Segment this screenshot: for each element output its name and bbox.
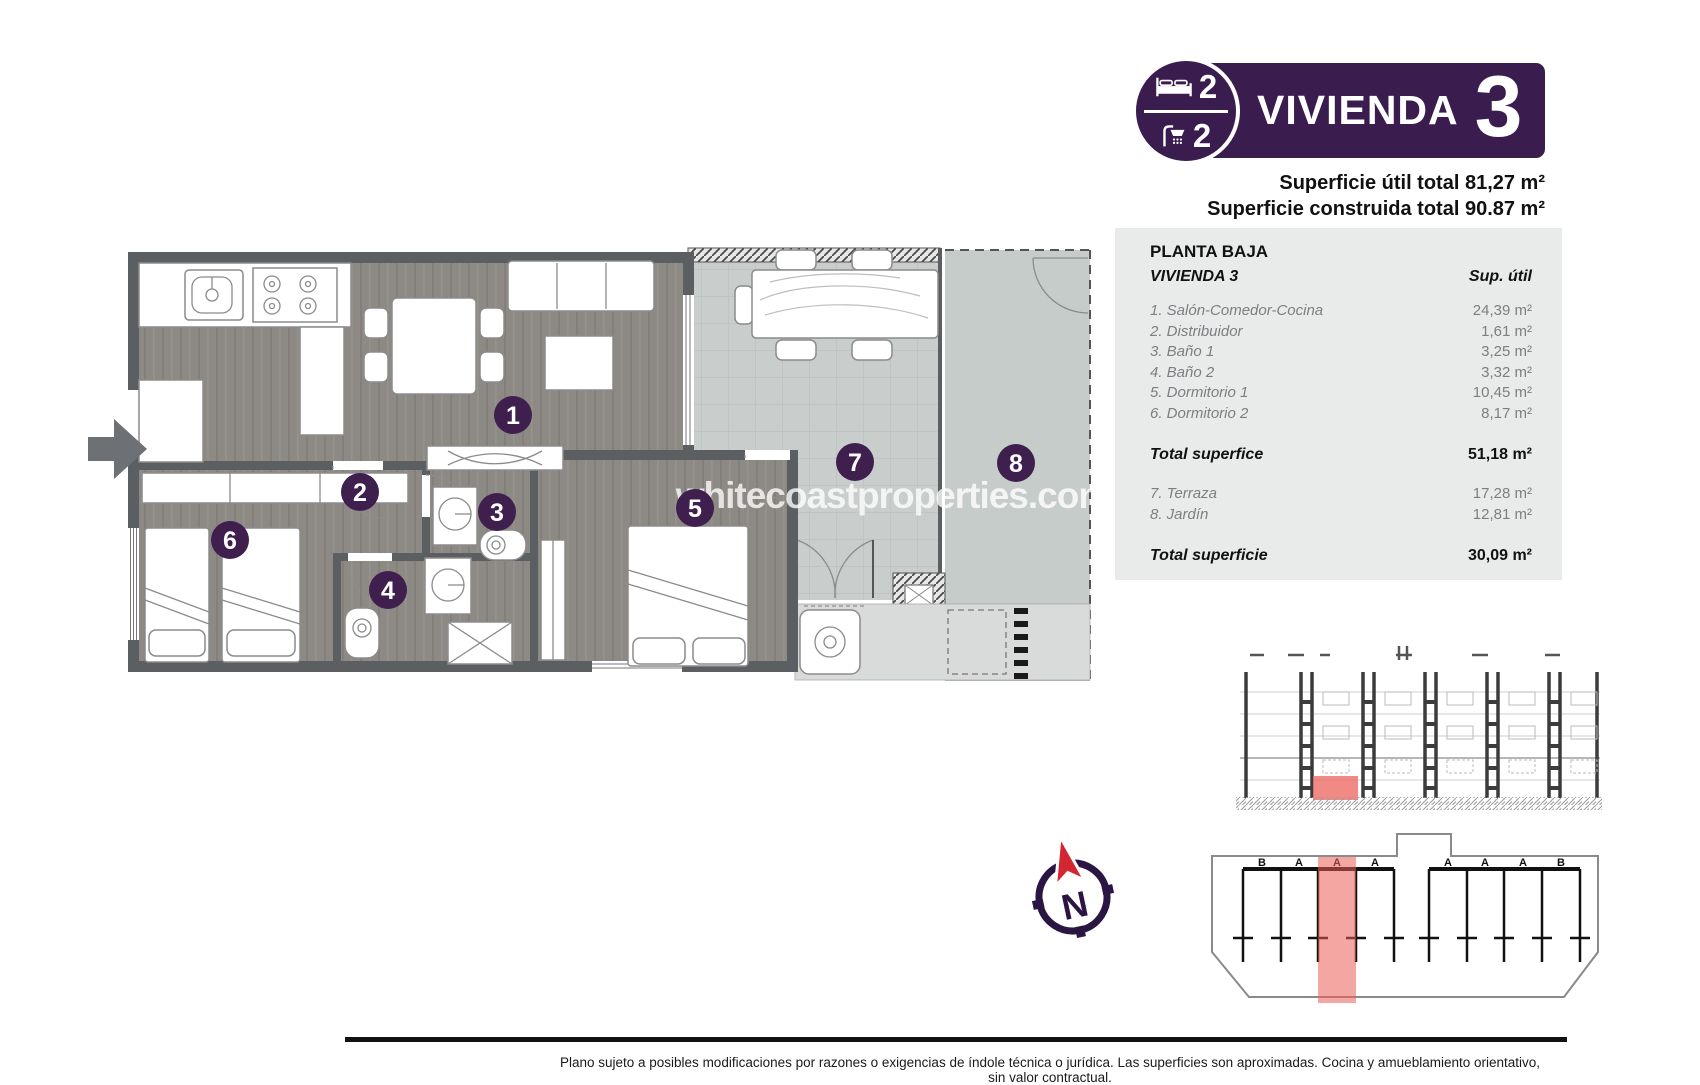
site-plan: B A A A A A A B	[1212, 834, 1598, 1003]
brochure-page: { "badge": { "title": "VIVIENDA", "numbe…	[0, 0, 1700, 1080]
table-title: PLANTA BAJA	[1150, 242, 1532, 262]
room-number-6: 6	[211, 521, 249, 559]
washing-machine	[800, 606, 864, 674]
bathroom-count: 2	[1193, 119, 1211, 152]
toilet	[345, 608, 379, 658]
room-surface-list: 1. Salón-Comedor-Cocina 24,39 m² 2. Dist…	[1150, 301, 1532, 424]
svg-text:3: 3	[490, 499, 504, 527]
table-row: 7. Terraza 17,28 m²	[1150, 484, 1532, 505]
table-row: 1. Salón-Comedor-Cocina 24,39 m²	[1150, 301, 1532, 322]
unit-label: A	[1519, 857, 1527, 869]
table-row: 2. Distribuidor 1,61 m²	[1150, 322, 1532, 343]
unit-label: A	[1295, 857, 1303, 869]
north-arrow-icon	[1045, 833, 1084, 886]
useful-surface-total: Superficie útil total 81,27 m²	[1207, 170, 1545, 196]
utility-patio	[795, 604, 1090, 680]
svg-text:4: 4	[381, 577, 395, 605]
table-subtitle: VIVIENDA 3	[1150, 268, 1238, 286]
table-row: 5. Dormitorio 1 10,45 m²	[1150, 383, 1532, 404]
room-number-2: 2	[341, 473, 379, 511]
north-label: N	[1058, 883, 1092, 929]
badge-unit-number: 3	[1475, 69, 1523, 146]
room-number-7: 7	[836, 443, 874, 481]
kitchen-island	[300, 327, 344, 435]
room-number-5: 5	[676, 489, 714, 527]
legal-disclaimer: Plano sujeto a posibles modificaciones p…	[550, 1055, 1550, 1085]
footer-rule	[345, 1037, 1567, 1042]
svg-text:8: 8	[1009, 450, 1023, 478]
rooms-icon-circle: 2 2	[1132, 57, 1240, 165]
surface-totals: Superficie útil total 81,27 m² Superfici…	[1207, 170, 1545, 222]
unit-label: B	[1258, 857, 1266, 869]
kitchen-sink-icon	[185, 270, 243, 320]
svg-text:6: 6	[223, 527, 237, 555]
unit-label: A	[1481, 857, 1489, 869]
svg-text:5: 5	[688, 495, 702, 523]
unit-label: A	[1444, 857, 1452, 869]
bed-icon	[1155, 75, 1193, 99]
unit-label: A	[1371, 857, 1379, 869]
elevation-unit-highlight	[1313, 776, 1358, 800]
room-number-1: 1	[494, 396, 532, 434]
stove-icon	[253, 268, 337, 322]
interior-total-row: Total superfice 51,18 m²	[1150, 446, 1532, 464]
svg-text:7: 7	[848, 449, 862, 477]
bedroom-count: 2	[1199, 70, 1217, 103]
room-number-8: 8	[997, 444, 1035, 482]
room-number-3: 3	[478, 493, 516, 531]
outdoor-surface-list: 7. Terraza 17,28 m² 8. Jardín 12,81 m²	[1150, 484, 1532, 525]
room-number-4: 4	[369, 571, 407, 609]
shower-icon	[1161, 123, 1187, 149]
fridge	[139, 380, 203, 462]
site-plan-unit-highlight	[1318, 857, 1356, 1003]
table-row: 3. Baño 1 3,25 m²	[1150, 342, 1532, 363]
elevation-drawing	[1236, 646, 1602, 810]
table-row: 8. Jardín 12,81 m²	[1150, 505, 1532, 526]
svg-text:1: 1	[506, 402, 520, 430]
north-compass: N	[1020, 828, 1122, 946]
watermark: whitecoastproperties.com	[675, 475, 1111, 516]
unit-label: B	[1557, 857, 1565, 869]
badge-title: VIVIENDA	[1257, 87, 1459, 134]
svg-text:2: 2	[353, 479, 367, 507]
coffee-table	[545, 336, 613, 390]
outdoor-total-row: Total superficie 30,09 m²	[1150, 547, 1532, 565]
table-row: 4. Baño 2 3,32 m²	[1150, 363, 1532, 384]
ground-hatch	[1236, 797, 1602, 810]
table-column-header: Sup. útil	[1469, 268, 1532, 286]
built-surface-total: Superficie construida total 90.87 m²	[1207, 196, 1545, 222]
table-row: 6. Dormitorio 2 8,17 m²	[1150, 404, 1532, 425]
tv-unit	[427, 446, 563, 470]
vivienda-badge: 2 2 VIVIENDA 3	[1165, 63, 1545, 158]
surface-table-panel: PLANTA BAJA VIVIENDA 3 Sup. útil 1. Saló…	[1115, 228, 1562, 580]
